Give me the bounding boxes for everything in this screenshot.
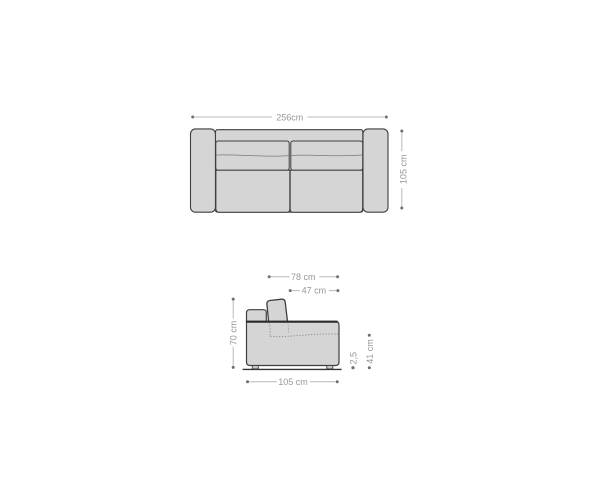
svg-text:2,5: 2,5 [348,352,358,365]
svg-text:47 cm: 47 cm [302,286,327,296]
svg-text:70 cm: 70 cm [229,321,239,346]
svg-text:105 cm: 105 cm [278,377,308,387]
svg-text:256cm: 256cm [276,112,303,122]
svg-text:78 cm: 78 cm [291,272,316,282]
svg-text:41 cm: 41 cm [365,339,375,364]
svg-text:105 cm: 105 cm [399,155,409,185]
